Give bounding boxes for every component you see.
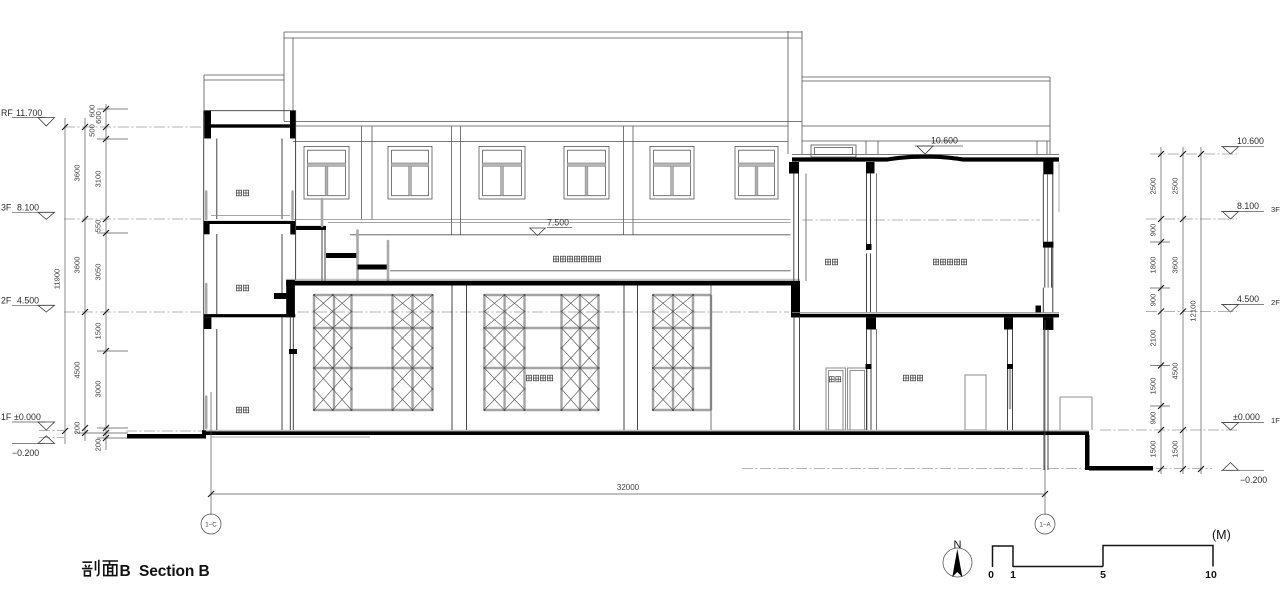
svg-text:10.600: 10.600 (931, 136, 958, 146)
svg-text:1500: 1500 (1171, 441, 1180, 458)
svg-text:1500: 1500 (94, 323, 103, 340)
svg-text:1: 1 (1010, 569, 1016, 581)
svg-text:3F: 3F (1271, 205, 1280, 214)
svg-text:900: 900 (1149, 294, 1158, 307)
svg-text:RF: RF (1, 108, 13, 118)
svg-text:10: 10 (1205, 569, 1217, 581)
svg-text:32000: 32000 (617, 483, 640, 492)
svg-text:−0.200: −0.200 (12, 448, 39, 458)
svg-text:3100: 3100 (94, 171, 103, 188)
svg-text:3F: 3F (1, 203, 12, 213)
svg-text:4500: 4500 (73, 362, 82, 379)
svg-text:900: 900 (1149, 412, 1158, 425)
svg-text:2500: 2500 (1149, 178, 1158, 195)
svg-text:1500: 1500 (1149, 441, 1158, 458)
svg-text:B Section B: B Section B (120, 563, 210, 580)
svg-text:1800: 1800 (1149, 257, 1158, 274)
svg-text:200: 200 (94, 439, 103, 452)
svg-text:±0.000: ±0.000 (14, 412, 41, 422)
svg-text:4.500: 4.500 (1237, 294, 1259, 304)
svg-text:1F: 1F (1271, 416, 1280, 425)
svg-text:3600: 3600 (73, 257, 82, 274)
svg-text:11.700: 11.700 (16, 108, 42, 118)
svg-text:1F: 1F (1, 412, 12, 422)
svg-text:−0.200: −0.200 (1240, 475, 1267, 485)
svg-text:5: 5 (1100, 569, 1106, 581)
svg-text:(M): (M) (1212, 528, 1231, 542)
svg-text:3600: 3600 (1171, 257, 1180, 274)
svg-text:10.600: 10.600 (1237, 136, 1264, 146)
svg-text:12100: 12100 (1189, 300, 1198, 321)
svg-text:8.100: 8.100 (17, 203, 39, 213)
svg-text:900: 900 (1149, 224, 1158, 237)
svg-text:4500: 4500 (1171, 363, 1180, 380)
svg-text:2F: 2F (1, 296, 12, 306)
svg-text:2500: 2500 (1171, 178, 1180, 195)
svg-text:200: 200 (73, 422, 82, 435)
svg-text:600: 600 (88, 105, 97, 118)
svg-text:8.100: 8.100 (1237, 201, 1259, 211)
svg-text:1500: 1500 (1149, 378, 1158, 395)
svg-text:1−C: 1−C (205, 522, 217, 529)
svg-text:1−A: 1−A (1039, 522, 1051, 529)
svg-text:550: 550 (94, 220, 103, 233)
svg-text:3000: 3000 (94, 381, 103, 398)
svg-text:2100: 2100 (1149, 330, 1158, 347)
svg-text:3050: 3050 (94, 264, 103, 281)
svg-text:500: 500 (88, 124, 97, 137)
svg-text:±0.000: ±0.000 (1233, 412, 1260, 422)
svg-text:2F: 2F (1271, 298, 1280, 307)
svg-text:0: 0 (988, 569, 994, 581)
svg-text:3600: 3600 (73, 165, 82, 182)
svg-text:4.500: 4.500 (17, 296, 39, 306)
svg-text:N: N (954, 539, 962, 551)
svg-text:11900: 11900 (53, 269, 62, 290)
